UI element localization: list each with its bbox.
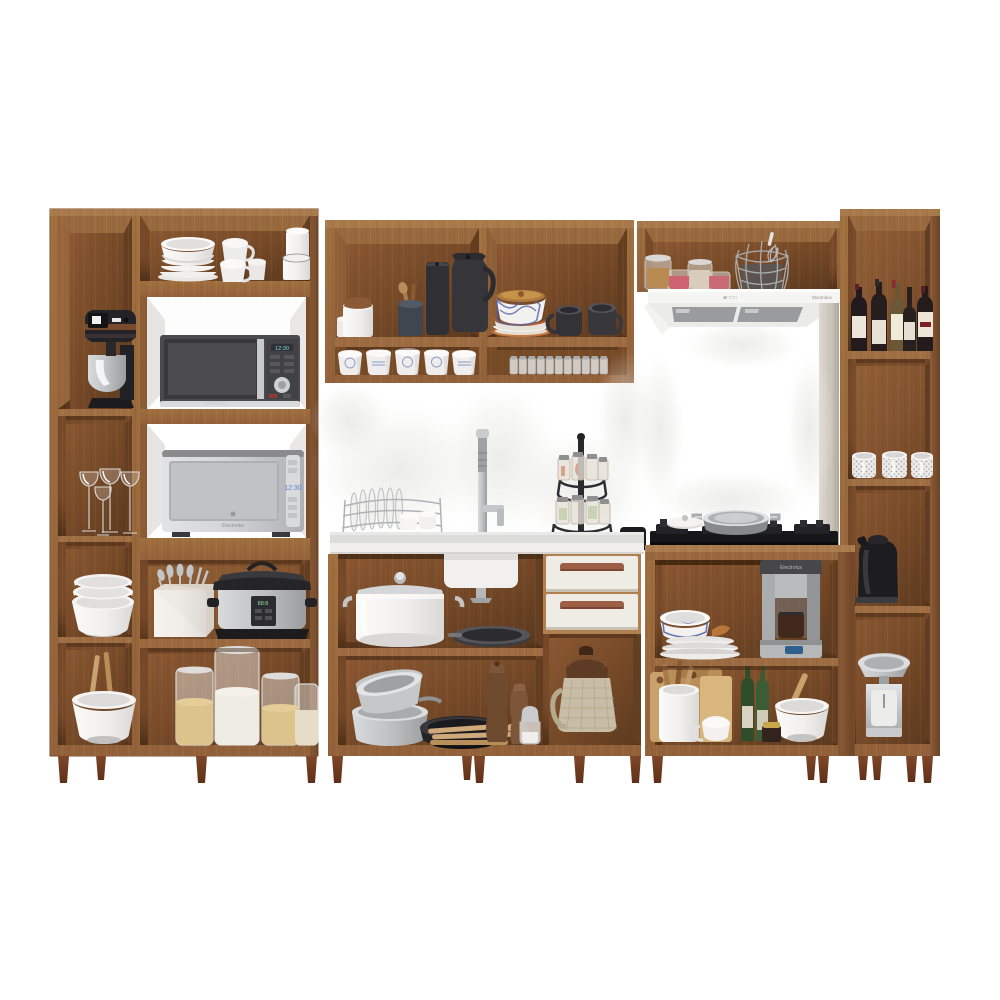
- svg-text:12:30: 12:30: [284, 485, 302, 492]
- svg-text:Electrolux: Electrolux: [812, 295, 833, 300]
- svg-text:■□ □□: ■□ □□: [723, 295, 736, 301]
- svg-text:12:30: 12:30: [275, 346, 289, 352]
- svg-text:Electrolux: Electrolux: [780, 565, 802, 571]
- svg-text:SAMSUNG: SAMSUNG: [204, 400, 227, 405]
- svg-text:Electrolux: Electrolux: [222, 523, 244, 529]
- svg-text:88:8: 88:8: [258, 601, 269, 607]
